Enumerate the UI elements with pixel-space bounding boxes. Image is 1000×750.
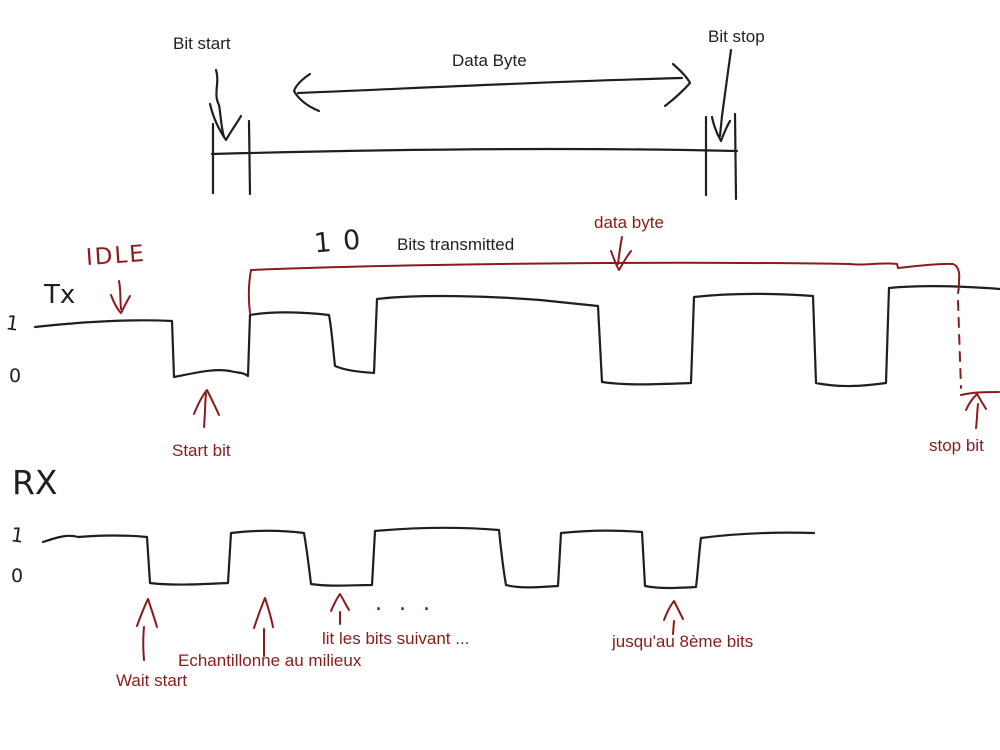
tx-waveform-group: [35, 286, 1000, 386]
rx-waveform: [43, 528, 814, 588]
data-byte-span-label: Data Byte: [452, 51, 527, 71]
tx-line-label: Tx: [44, 281, 75, 311]
until-eighth-bit-label: jusqu'au 8ème bits: [612, 632, 753, 652]
until-eighth-bit-arrow-head: [664, 601, 683, 620]
data-byte-annotation-label: data byte: [594, 213, 664, 233]
tx-waveform: [35, 286, 1000, 386]
read-following-bits-label: lit les bits suivant ...: [322, 629, 469, 649]
data-byte-span-arrow-right-head: [665, 64, 690, 106]
bit-stop-label: Bit stop: [708, 27, 765, 47]
tx-red-annotations: [111, 237, 999, 428]
stop-bit-label: stop bit: [929, 436, 984, 456]
data-byte-arrow-head: [611, 251, 631, 270]
rx-waveform-group: [43, 528, 814, 588]
sample-middle-arrow-head: [254, 598, 273, 628]
wait-start-arrow-head: [137, 599, 157, 627]
bit-start-label: Bit start: [173, 34, 231, 54]
ruler-baseline: [212, 149, 737, 154]
bits-transmitted-label: Bits transmitted: [397, 235, 514, 255]
tx-level-zero-label: 0: [9, 366, 21, 388]
data-byte-arrow-stem: [618, 237, 622, 264]
data-byte-bracket-line: [249, 263, 959, 313]
ruler-tick-left-2: [249, 121, 250, 194]
sketch-strokes: [0, 0, 1000, 750]
rx-level-zero-label: 0: [11, 566, 23, 588]
ellipsis-dots: . . .: [376, 594, 436, 615]
sketch-canvas: Bit start Data Byte Bit stop IDLE Tx 1 0…: [0, 0, 1000, 750]
top-ruler-diagram: [210, 50, 737, 199]
read-next-bits-arrow-head: [331, 594, 349, 611]
stop-bit-arrow-head: [966, 394, 986, 410]
stop-bit-marker-line: [961, 392, 999, 395]
bits-count-handwritten: 10: [313, 224, 374, 260]
sample-middle-label: Echantillonne au milieux: [178, 651, 361, 671]
ruler-tick-right-2: [735, 114, 736, 199]
data-byte-span-arrow-line: [298, 78, 682, 93]
rx-line-label: RX: [12, 464, 58, 502]
stop-bit-arrow-stem: [976, 404, 978, 428]
wait-start-arrow-stem: [143, 627, 144, 660]
start-bit-arrow-stem: [204, 393, 206, 427]
wait-start-label: Wait start: [116, 671, 187, 691]
idle-label: IDLE: [85, 241, 147, 272]
stop-bit-dashed-line: [958, 301, 961, 388]
start-bit-label: Start bit: [172, 441, 231, 461]
bit-start-arrow-head: [210, 104, 241, 140]
idle-arrow-stem: [119, 281, 121, 309]
